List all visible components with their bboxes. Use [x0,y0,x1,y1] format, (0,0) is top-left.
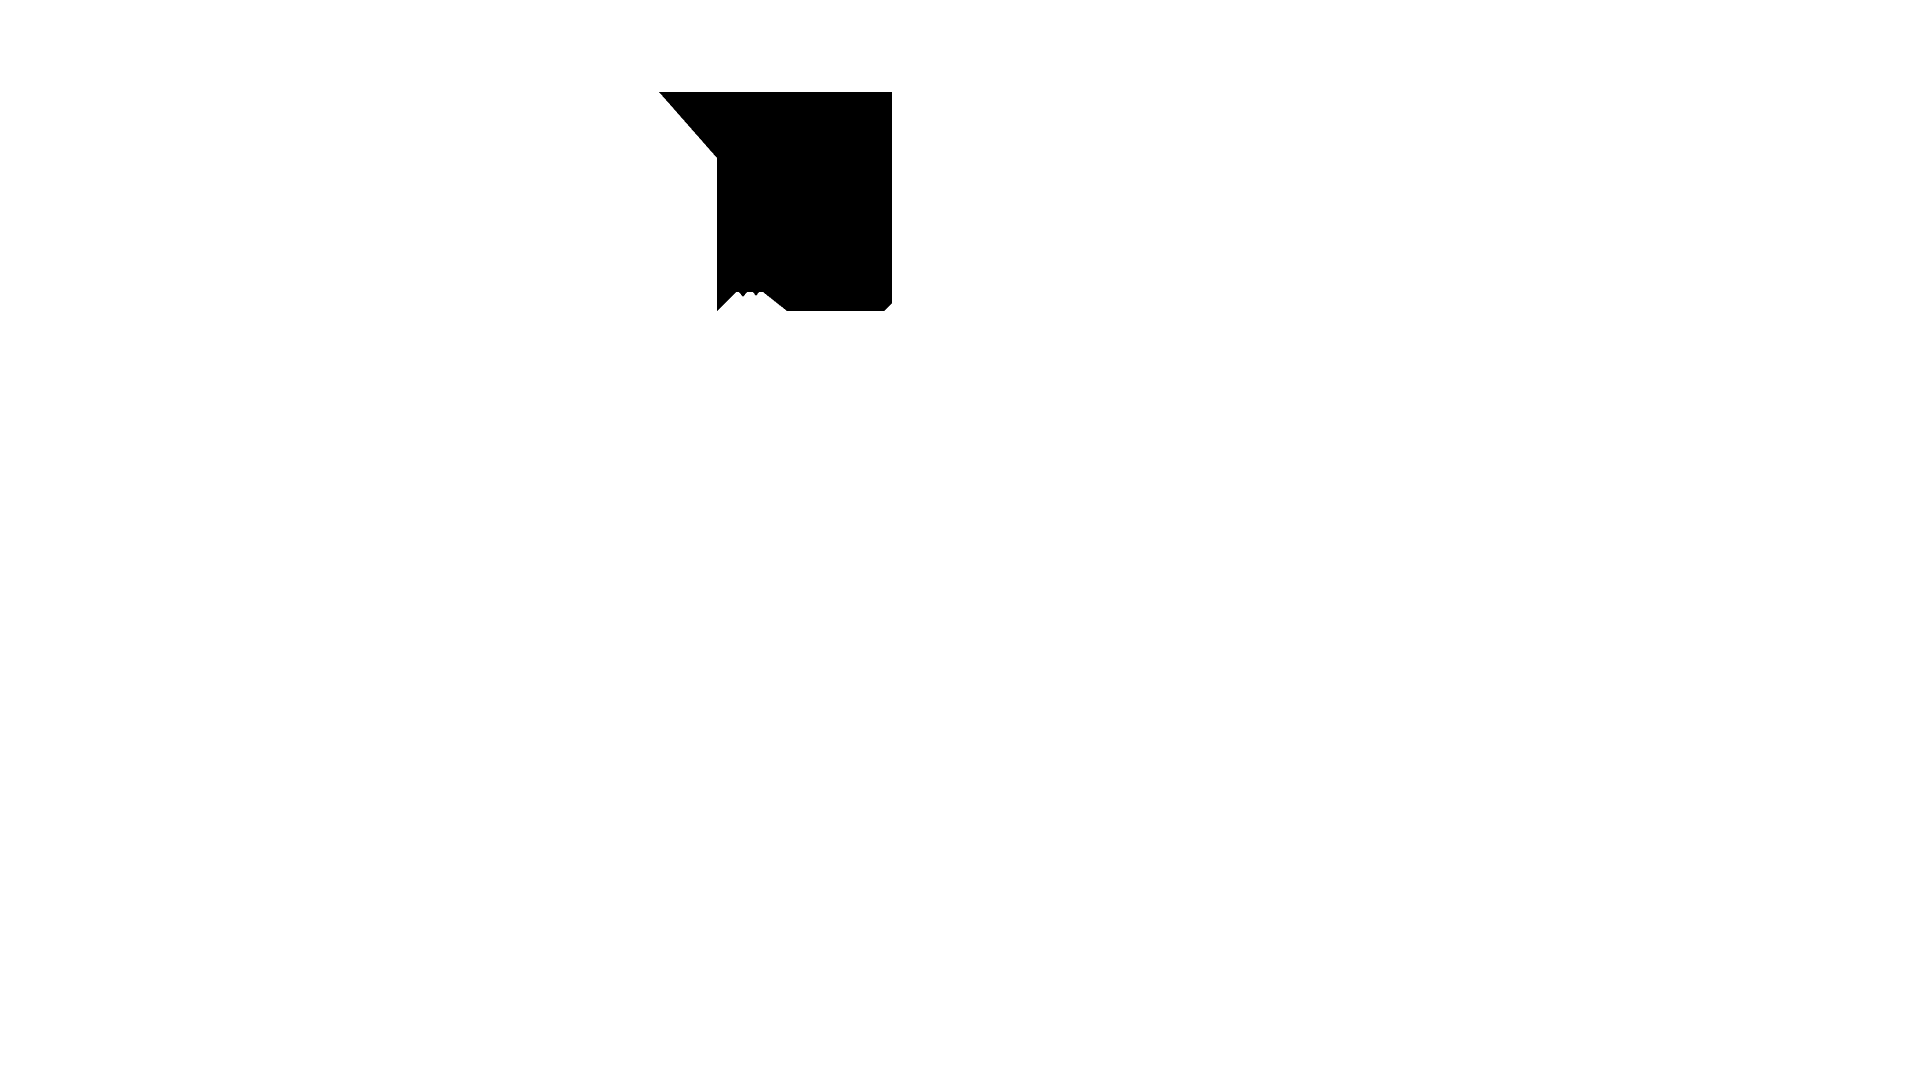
black-glyph-graphic [0,0,1920,1080]
blank-screen [0,0,1920,1080]
glyph-shape [659,92,892,311]
